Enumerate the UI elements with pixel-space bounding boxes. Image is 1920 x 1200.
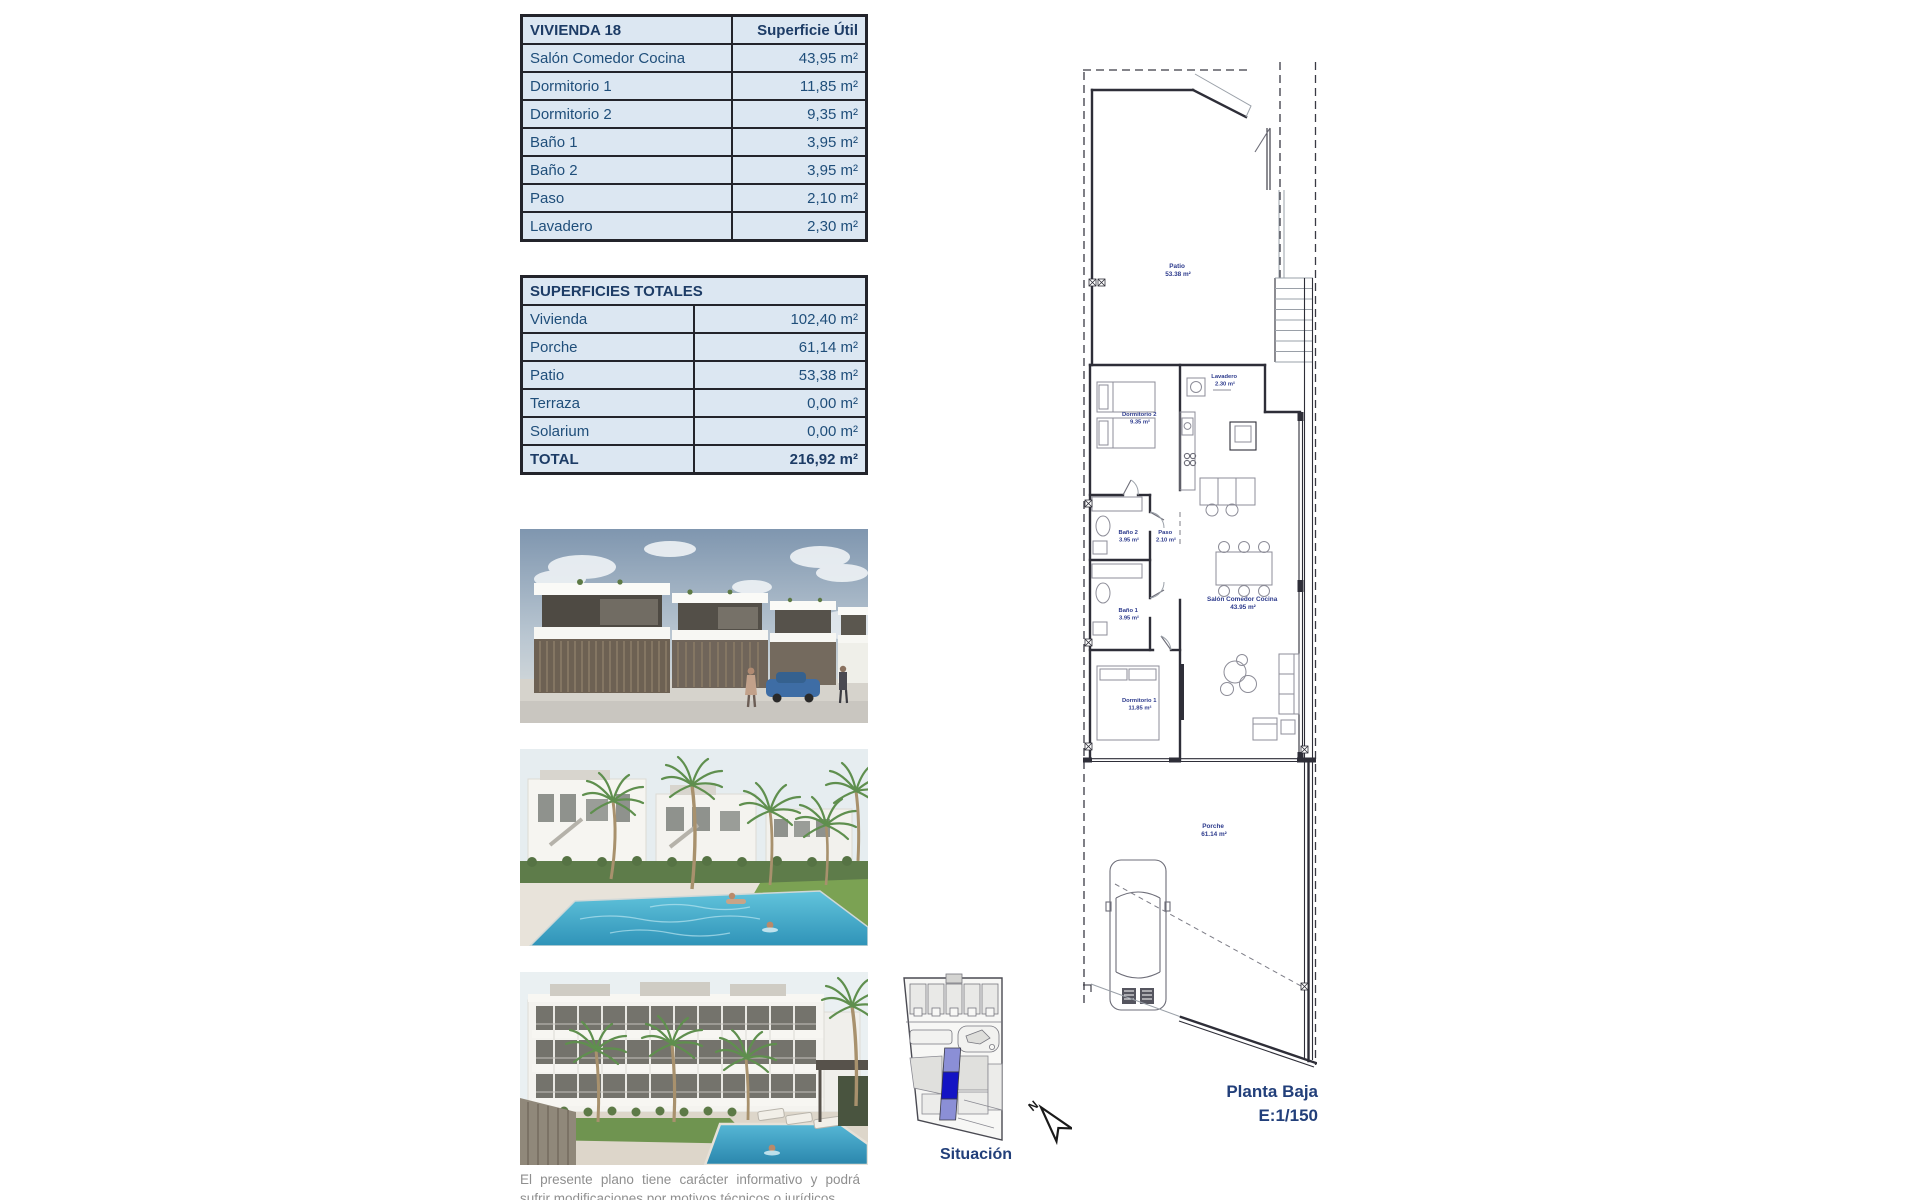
- room-label-dormitorio2: Dormitorio 2 9.35 m²: [1122, 412, 1158, 426]
- north-arrow-icon: N: [1028, 1090, 1072, 1146]
- area-value-cell: 11,85 m²: [732, 72, 867, 100]
- kitchen-fixtures: [1180, 412, 1256, 516]
- room-label-porche: Porche 61.14 m²: [1201, 823, 1227, 838]
- room-label-cell: Baño 2: [522, 156, 733, 184]
- table-row: Vivienda102,40 m²: [522, 305, 867, 333]
- room-label-cell: Dormitorio 2: [522, 100, 733, 128]
- table-header-row: SUPERFICIES TOTALES: [522, 277, 867, 306]
- plan-caption-title: Planta Baja: [1150, 1080, 1318, 1104]
- road: [520, 701, 868, 723]
- superficies-totales-table: SUPERFICIES TOTALES Vivienda102,40 m² Po…: [520, 275, 868, 475]
- plan-caption-scale: E:1/150: [1150, 1104, 1318, 1128]
- room-label-cell: Terraza: [522, 389, 695, 417]
- area-value-cell: 43,95 m²: [732, 44, 867, 72]
- table-row: Solarium0,00 m²: [522, 417, 867, 445]
- situation-label: Situación: [916, 1146, 1036, 1164]
- render-photo-building-pool: [520, 972, 868, 1165]
- render-photo-pool-view: [520, 749, 868, 946]
- table-row: Dormitorio 29,35 m²: [522, 100, 867, 128]
- room-label-cell: Porche: [522, 333, 695, 361]
- table-row: Salón Comedor Cocina43,95 m²: [522, 44, 867, 72]
- bathroom1-fixtures: [1092, 564, 1142, 635]
- table-row: Baño 13,95 m²: [522, 128, 867, 156]
- table-title: SUPERFICIES TOTALES: [522, 277, 867, 306]
- table-row: Porche61,14 m²: [522, 333, 867, 361]
- room-label-cell: Paso: [522, 184, 733, 212]
- render-photo-street-view: [520, 529, 868, 723]
- room-label-cell: Solarium: [522, 417, 695, 445]
- area-value-cell: 0,00 m²: [694, 417, 867, 445]
- area-value-cell: 2,30 m²: [732, 212, 867, 241]
- area-value-cell: 3,95 m²: [732, 156, 867, 184]
- table-total-row: TOTAL216,92 m²: [522, 445, 867, 474]
- room-label-cell: Salón Comedor Cocina: [522, 44, 733, 72]
- disclaimer-text: El presente plano tiene carácter informa…: [520, 1171, 860, 1200]
- living-dining-furniture: [1216, 542, 1299, 741]
- room-label-paso: Paso 2.10 m²: [1156, 530, 1176, 544]
- area-value-cell: 2,10 m²: [732, 184, 867, 212]
- patio-walls: [1092, 74, 1251, 365]
- area-value-cell: 61,14 m²: [694, 333, 867, 361]
- staircase: [1275, 190, 1313, 362]
- room-label-cell: Lavadero: [522, 212, 733, 241]
- total-value-cell: 216,92 m²: [694, 445, 867, 474]
- table-row: Patio53,38 m²: [522, 361, 867, 389]
- table-header-right: Superficie Útil: [732, 16, 867, 45]
- bottom-boundary: [1083, 984, 1316, 1067]
- table-row: Paso2,10 m²: [522, 184, 867, 212]
- entrance-gate: [1255, 128, 1270, 190]
- area-value-cell: 53,38 m²: [694, 361, 867, 389]
- party-wall-right: [1305, 278, 1313, 1061]
- plan-sheet-page: VIVIENDA 18 Superficie Útil Salón Comedo…: [0, 0, 1920, 1200]
- swimming-pool: [705, 1124, 868, 1165]
- room-label-patio: Patio 53.38 m²: [1165, 263, 1191, 278]
- total-label-cell: TOTAL: [522, 445, 695, 474]
- room-label-cell: Dormitorio 1: [522, 72, 733, 100]
- room-label-cell: Vivienda: [522, 305, 695, 333]
- area-value-cell: 102,40 m²: [694, 305, 867, 333]
- apartment-building: [528, 982, 860, 1112]
- porch-car: [1106, 860, 1301, 1010]
- area-value-cell: 0,00 m²: [694, 389, 867, 417]
- table-row: Dormitorio 111,85 m²: [522, 72, 867, 100]
- room-label-dormitorio1: Dormitorio 1 11.85 m²: [1122, 698, 1158, 712]
- plan-caption: Planta Baja E:1/150: [1150, 1080, 1318, 1128]
- table-row: Terraza0,00 m²: [522, 389, 867, 417]
- area-value-cell: 9,35 m²: [732, 100, 867, 128]
- bathroom2-fixtures: [1092, 497, 1142, 554]
- table-row: Lavadero2,30 m²: [522, 212, 867, 241]
- situation-map: [898, 972, 1010, 1144]
- room-label-bano1: Baño 1 3.95 m²: [1119, 608, 1140, 622]
- room-label-lavadero: Lavadero 2.30 m²: [1211, 374, 1238, 388]
- room-label-cell: Baño 1: [522, 128, 733, 156]
- table-row: Baño 23,95 m²: [522, 156, 867, 184]
- vivienda-table: VIVIENDA 18 Superficie Útil Salón Comedo…: [520, 14, 868, 242]
- table-header-row: VIVIENDA 18 Superficie Útil: [522, 16, 867, 45]
- floor-plan: Patio 53.38 m² Lavadero 2.30 m² Dormitor…: [1083, 60, 1317, 1073]
- room-label-bano2: Baño 2 3.95 m²: [1119, 530, 1140, 544]
- room-label-salon: Salón Comedor Cocina 43.95 m²: [1207, 596, 1279, 611]
- area-value-cell: 3,95 m²: [732, 128, 867, 156]
- table-title: VIVIENDA 18: [522, 16, 733, 45]
- boundary-pillars: [1085, 279, 1308, 990]
- room-label-cell: Patio: [522, 361, 695, 389]
